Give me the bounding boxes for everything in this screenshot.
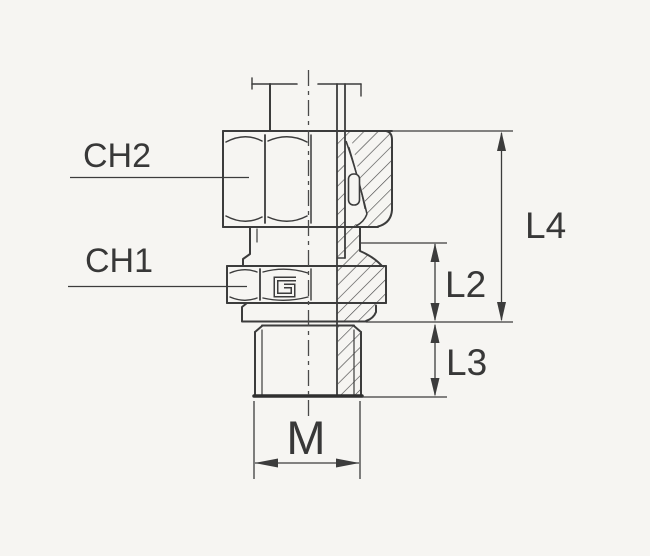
nut-chamfer-arcs-bottom xyxy=(226,216,307,221)
arrowhead-l2-down xyxy=(431,303,440,322)
nut-chamfer-arcs-top xyxy=(226,137,307,142)
label-ch2: CH2 xyxy=(83,137,151,175)
tube-wall-section xyxy=(337,132,345,258)
dimension-l3 xyxy=(431,324,440,397)
technical-drawing: CH2 CH1 L4 L2 L3 M xyxy=(0,0,650,556)
label-ch1: CH1 xyxy=(85,242,153,280)
arrowhead-l4-up xyxy=(497,132,506,152)
labels: CH2 CH1 L4 L2 L3 M xyxy=(83,137,566,464)
arrowhead-l3-up xyxy=(431,324,440,344)
arrowhead-m-left xyxy=(255,459,279,468)
arrowhead-m-right xyxy=(336,459,360,468)
hex-chamfer-arcs-top xyxy=(230,269,308,273)
flange-left-profile xyxy=(242,303,247,321)
arrowhead-l4-down xyxy=(497,302,506,322)
collar-section xyxy=(345,227,360,243)
label-l3: L3 xyxy=(446,342,487,383)
stud-left-chamfer xyxy=(255,326,262,332)
drawing-sheet: CH2 CH1 L4 L2 L3 M xyxy=(0,0,650,556)
cutting-ring xyxy=(349,174,360,205)
label-l2: L2 xyxy=(445,264,486,305)
arrowhead-l2-up xyxy=(431,243,440,262)
arrowhead-l3-down xyxy=(431,378,440,397)
dimension-l2 xyxy=(431,243,440,322)
hex-chamfer-arcs-bottom xyxy=(230,297,308,300)
label-l4: L4 xyxy=(525,205,566,246)
label-m: M xyxy=(286,411,325,464)
dimension-l4 xyxy=(497,132,506,322)
washer-left-profile xyxy=(243,243,250,265)
stud-section xyxy=(338,326,360,395)
